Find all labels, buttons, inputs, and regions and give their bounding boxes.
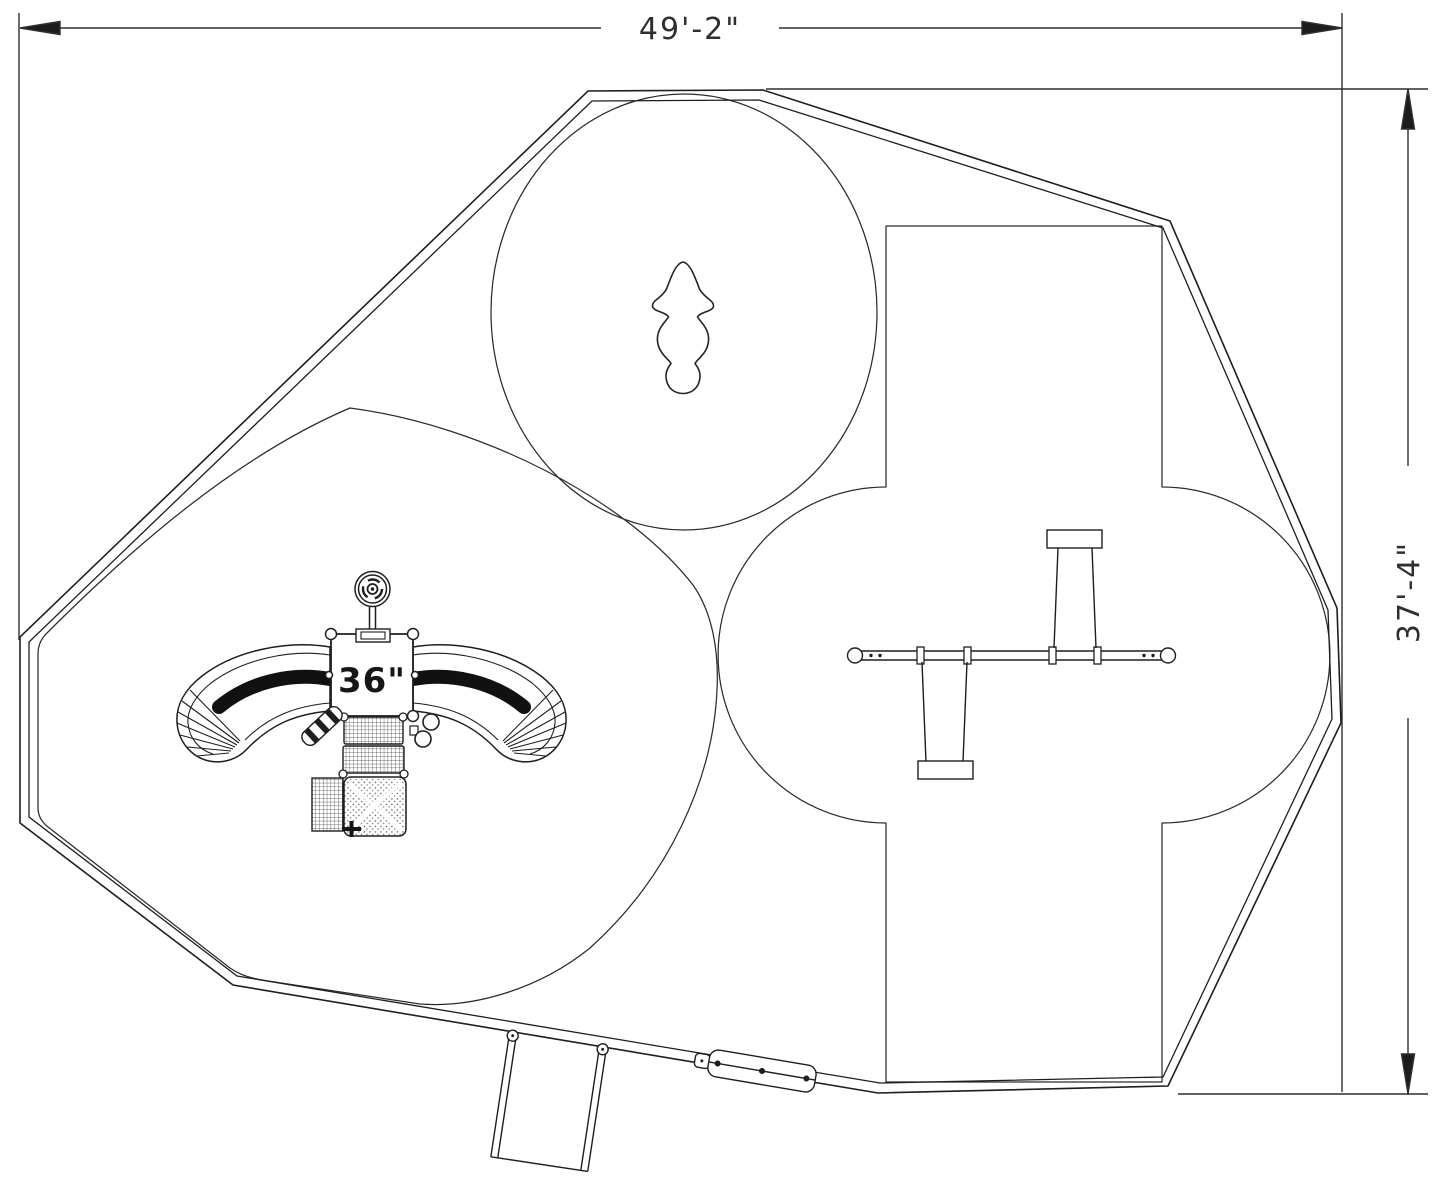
use-zones: [38, 94, 1330, 1082]
swing-beam-end-left: [848, 648, 863, 663]
site-border: [20, 90, 1341, 1093]
play-structure: 36": [177, 572, 566, 838]
swing-rear: [1047, 530, 1102, 648]
plan-drawing: 49'-2" 37'-4": [0, 0, 1445, 1185]
arrowhead-right-icon: [1302, 22, 1342, 35]
site-border-inner: [29, 100, 1332, 1083]
swing-seat-rear: [1047, 530, 1102, 548]
dimension-height-label: 37'-4": [1392, 541, 1427, 643]
spring-toy-figure: [652, 262, 713, 394]
slide-right: [413, 645, 566, 762]
dimension-width-label: 49'-2": [639, 12, 741, 47]
swing-front: [918, 662, 973, 779]
playground-plan-canvas: 49'-2" 37'-4": [0, 0, 1445, 1185]
climbing-net-panel-1: [344, 717, 403, 744]
dimension-annotations: [19, 13, 1428, 1094]
climbing-net-panel-2: [343, 746, 404, 773]
use-zone-swings: [718, 226, 1330, 1082]
transfer-ramp: [489, 1029, 609, 1171]
steering-wheel-icon: [355, 572, 390, 633]
park-bench: [693, 1046, 818, 1093]
swing-beam-end-right: [1161, 648, 1176, 663]
site-border-outer: [20, 90, 1341, 1093]
deck-height-label: 36": [338, 661, 406, 701]
arrowhead-down-icon: [1402, 1054, 1415, 1094]
swing-set: [848, 530, 1176, 779]
swing-hangers: [917, 647, 1101, 664]
arrowhead-left-icon: [20, 22, 60, 35]
use-zone-top-circle: [491, 94, 877, 530]
side-mesh-panel: [312, 778, 343, 831]
arrowhead-up-icon: [1402, 89, 1415, 129]
swing-seat-front: [918, 761, 973, 779]
